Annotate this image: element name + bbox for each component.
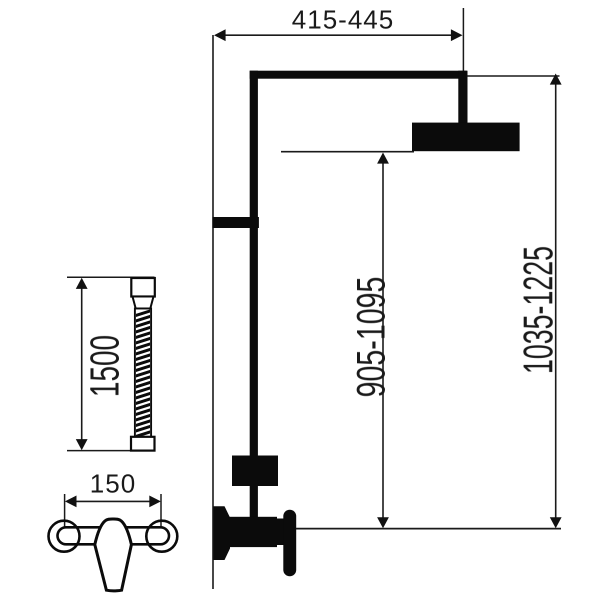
svg-text:905-1095: 905-1095 [350,277,394,398]
svg-text:150: 150 [90,469,136,499]
svg-text:1500: 1500 [82,335,128,397]
svg-text:1035-1225: 1035-1225 [515,246,562,374]
svg-text:415-445: 415-445 [292,5,394,35]
